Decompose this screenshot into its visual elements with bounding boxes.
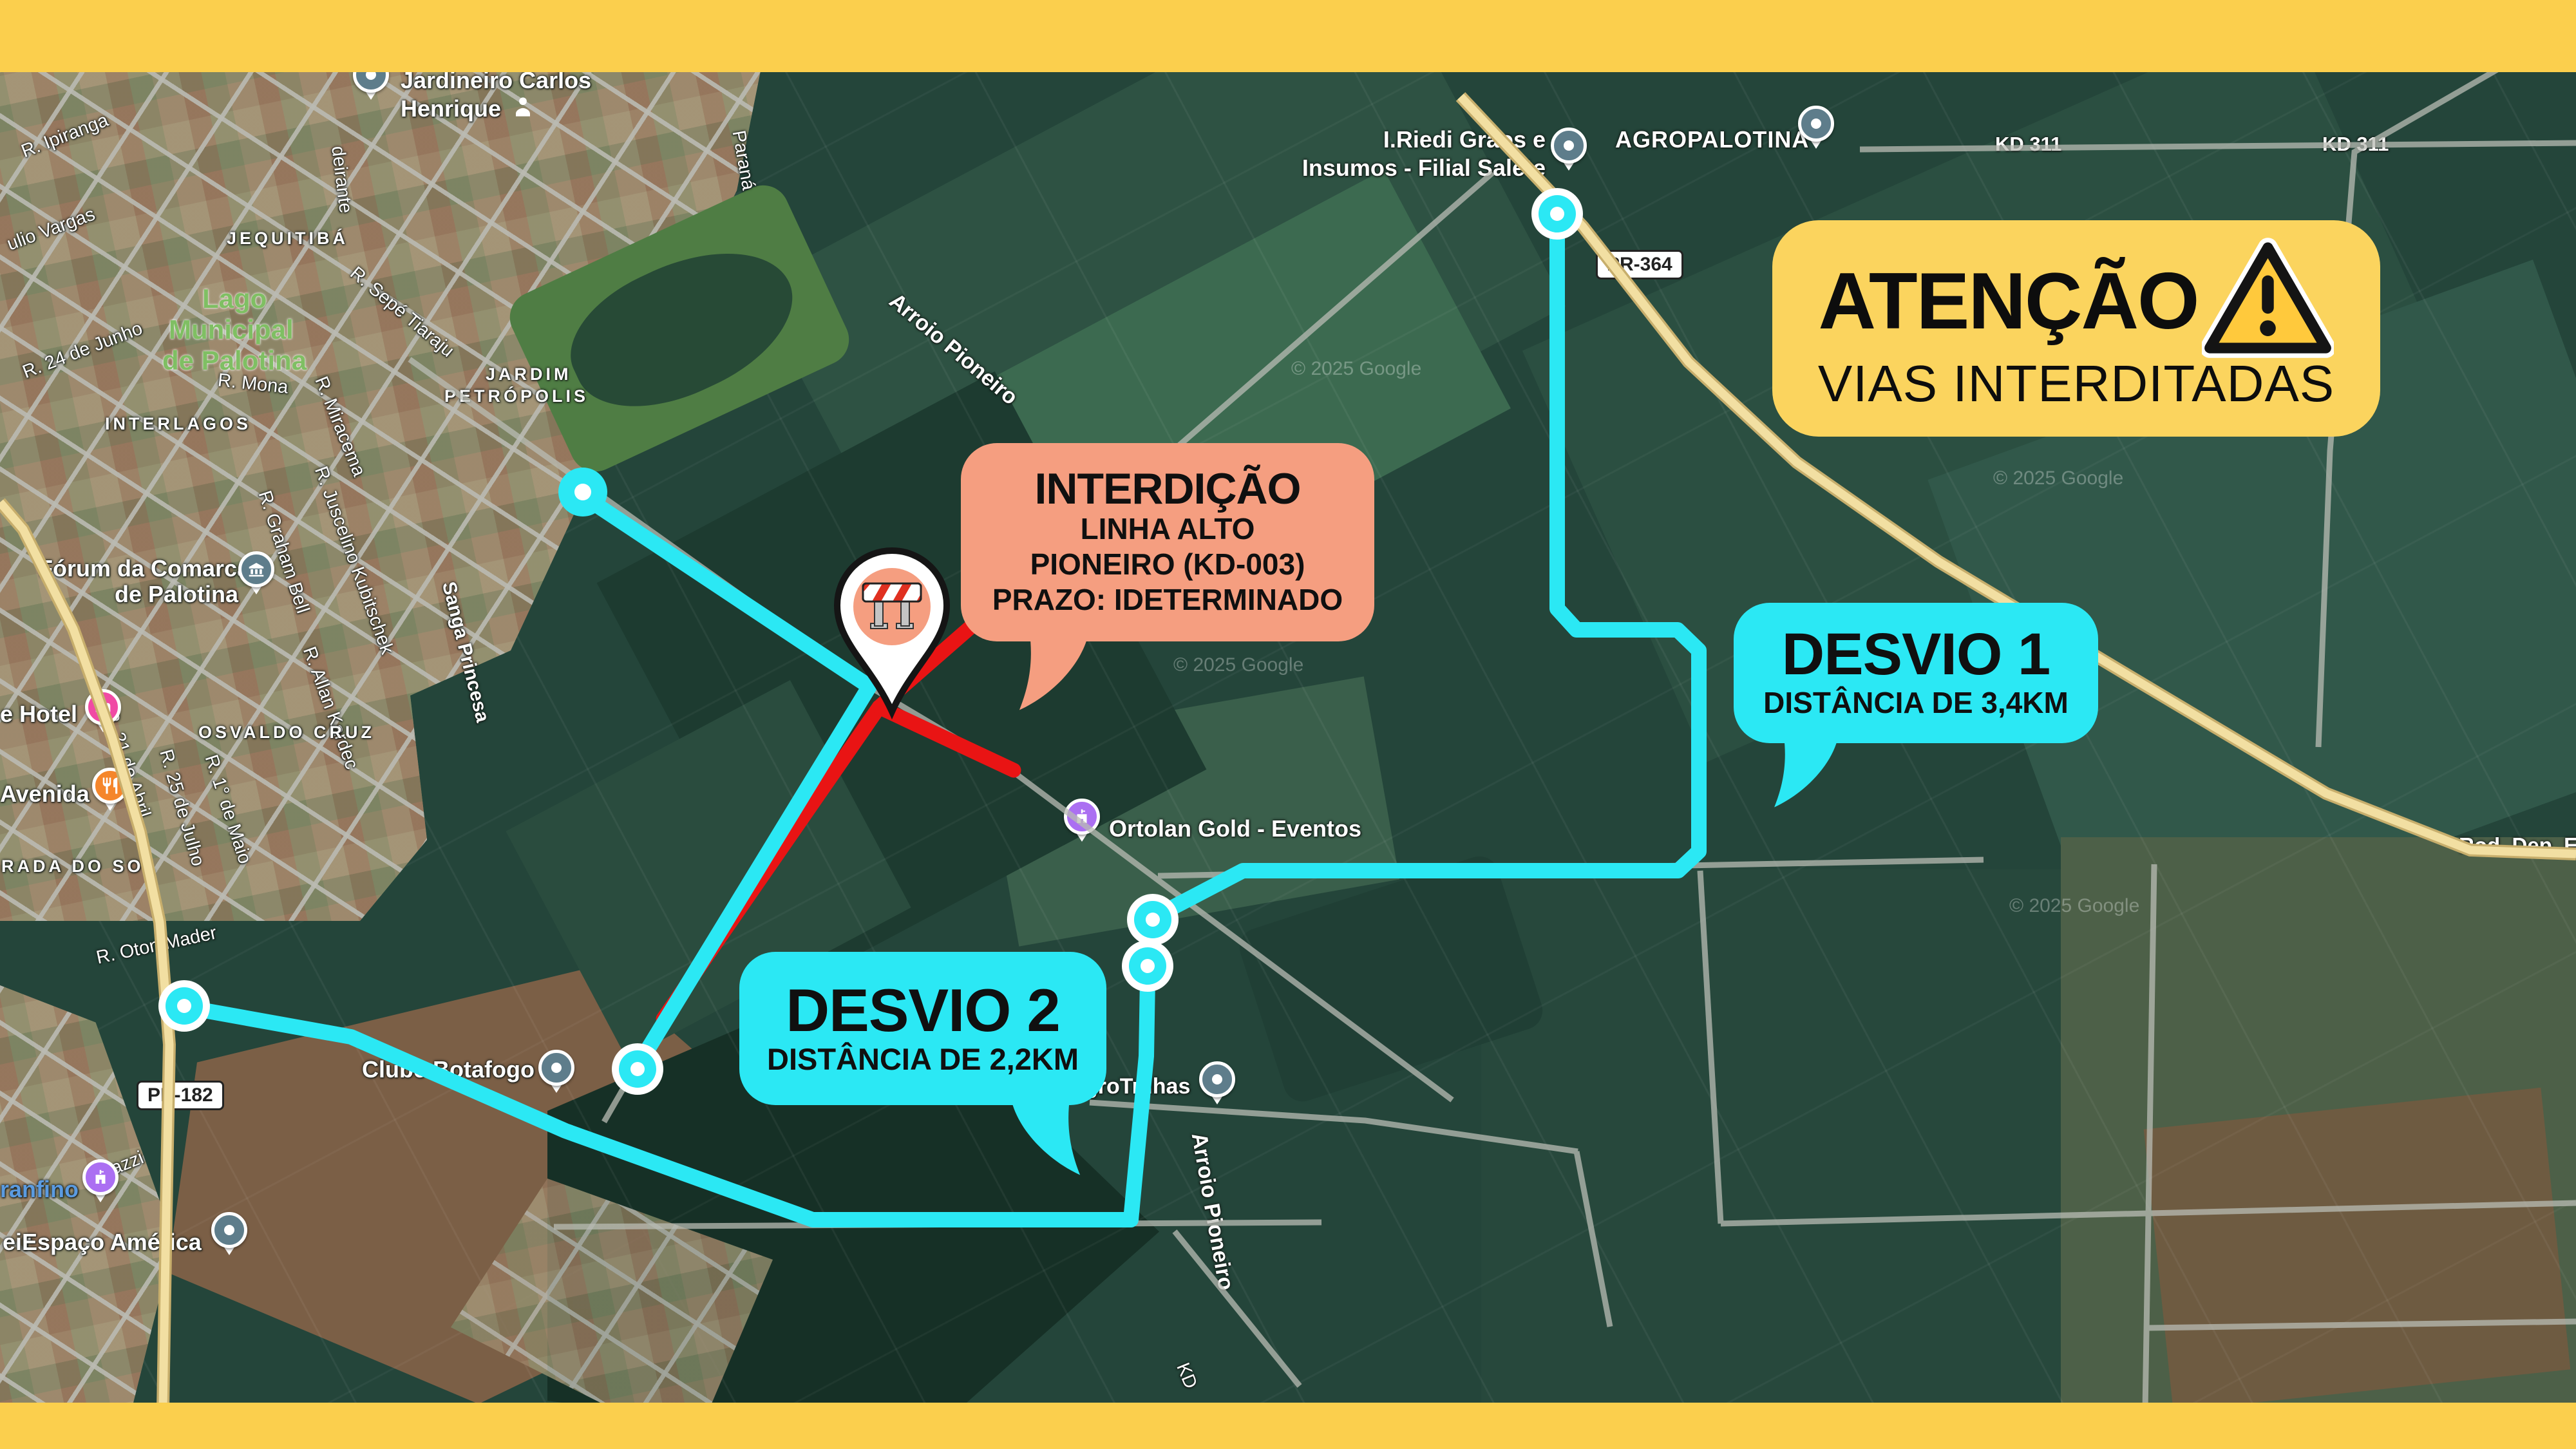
- detour-1-bubble: DESVIO 1 DISTÂNCIA DE 3,4KM: [1734, 603, 2098, 743]
- alert-overlay: [0, 0, 2576, 1449]
- detour-1-title: DESVIO 1: [1782, 625, 2050, 685]
- detour-2-bubble: DESVIO 2 DISTÂNCIA DE 2,2KM: [739, 952, 1106, 1105]
- banner-subtitle: VIAS INTERDITADAS: [1818, 354, 2334, 413]
- closure-line: PIONEIRO (KD-003): [1030, 547, 1305, 582]
- closure-line: LINHA ALTO: [1081, 511, 1255, 547]
- closure-title: INTERDIÇÃO: [1034, 467, 1300, 511]
- closure-line: PRAZO: IDETERMINADO: [992, 582, 1343, 618]
- frame-bar-bottom: [0, 1403, 2576, 1449]
- frame-bar-top: [0, 0, 2576, 72]
- detour-2-distance: DISTÂNCIA DE 2,2KM: [767, 1041, 1079, 1077]
- closure-info-bubble: INTERDIÇÃO LINHA ALTO PIONEIRO (KD-003) …: [961, 443, 1374, 641]
- warning-triangle-icon: [2202, 237, 2334, 359]
- road-closed-marker-icon: [837, 551, 947, 712]
- bubble-tail: [995, 1096, 1092, 1183]
- detour-2-title: DESVIO 2: [786, 980, 1060, 1041]
- map-flyer: R. Ipiranga ulio Vargas R. 24 de Junho R…: [0, 0, 2576, 1449]
- bubble-tail: [1763, 734, 1853, 815]
- bubble-tail: [1008, 631, 1104, 718]
- banner-title: ATENÇÃO: [1819, 256, 2199, 347]
- detour-1-distance: DISTÂNCIA DE 3,4KM: [1763, 685, 2069, 721]
- attention-banner: ATENÇÃO VIAS INTERDITADAS: [1772, 220, 2380, 437]
